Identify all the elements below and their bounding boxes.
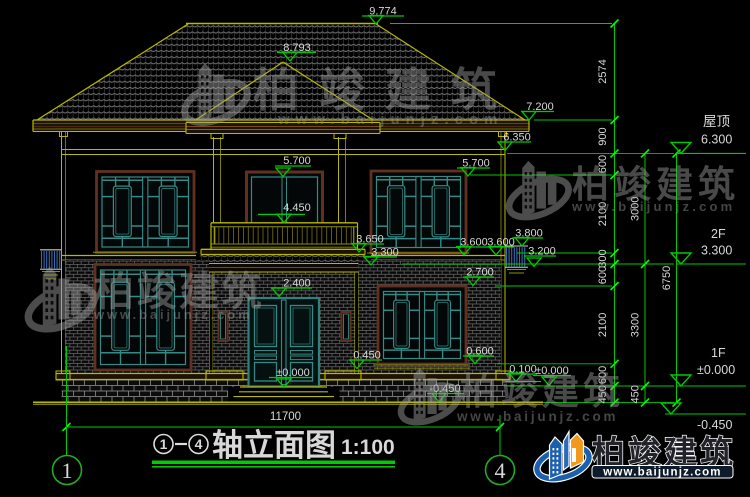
svg-text:11700: 11700 <box>270 411 301 423</box>
svg-text:4: 4 <box>195 436 203 452</box>
svg-text:轴立面图: 轴立面图 <box>212 428 336 463</box>
svg-text:5.700: 5.700 <box>283 155 311 167</box>
svg-text:3.300: 3.300 <box>701 244 732 258</box>
svg-text:6.300: 6.300 <box>701 133 732 147</box>
svg-text:1: 1 <box>62 458 73 483</box>
svg-text:450: 450 <box>630 385 642 403</box>
svg-text:±0.000: ±0.000 <box>697 363 735 377</box>
svg-text:www.baijunjz.com: www.baijunjz.com <box>93 307 253 322</box>
svg-text:屋顶: 屋顶 <box>703 114 730 129</box>
svg-text:4: 4 <box>495 458 506 483</box>
svg-text:3300: 3300 <box>630 313 642 337</box>
svg-text:1:100: 1:100 <box>341 436 395 459</box>
svg-text:2574: 2574 <box>597 59 609 83</box>
svg-text:2100: 2100 <box>597 313 609 337</box>
svg-text:1F: 1F <box>711 346 726 360</box>
svg-text:4.450: 4.450 <box>283 202 311 214</box>
svg-text:www.baijunjz.com: www.baijunjz.com <box>277 111 503 128</box>
svg-text:6750: 6750 <box>661 266 673 290</box>
svg-text:2F: 2F <box>711 227 726 241</box>
svg-text:-0.450: -0.450 <box>697 418 732 432</box>
svg-text:600: 600 <box>597 266 609 284</box>
svg-text:300: 300 <box>597 249 609 267</box>
svg-text:柏竣建筑: 柏竣建筑 <box>460 370 624 412</box>
svg-text:柏竣建筑: 柏竣建筑 <box>253 64 517 116</box>
svg-text:www.baijunjz.com: www.baijunjz.com <box>456 409 618 424</box>
svg-text:www.baijunjz.com: www.baijunjz.com <box>602 467 721 479</box>
svg-text:900: 900 <box>597 127 609 145</box>
svg-text:www.baijunjz.com: www.baijunjz.com <box>571 199 735 214</box>
svg-text:1: 1 <box>160 436 168 452</box>
